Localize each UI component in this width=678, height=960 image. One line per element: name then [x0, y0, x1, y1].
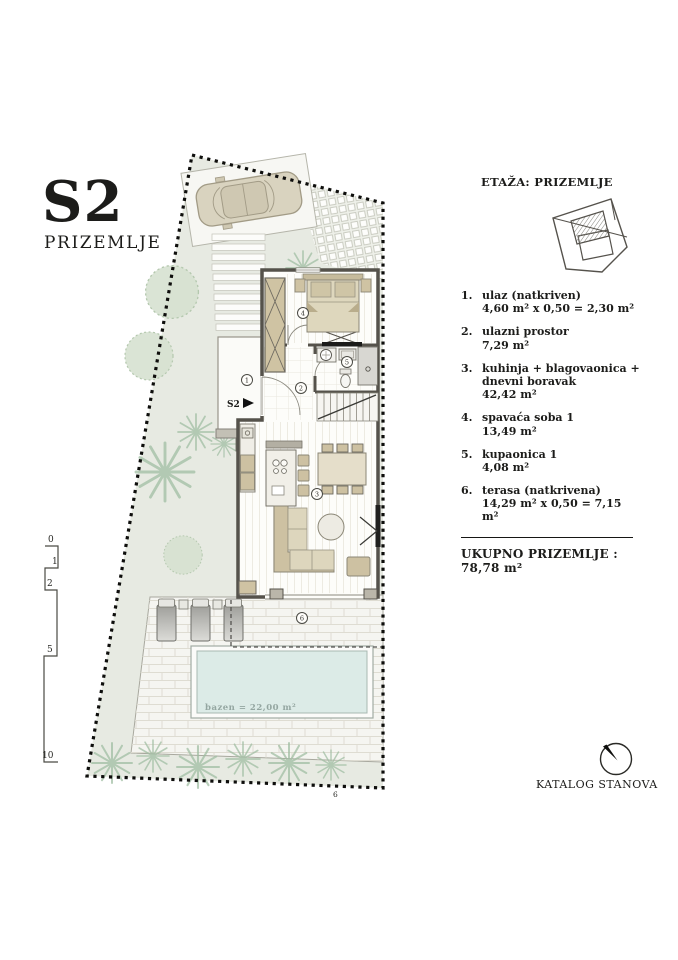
svg-text:4: 4 — [301, 309, 305, 317]
legend-room-area: 4,08 m² — [482, 461, 529, 474]
dining-set — [318, 444, 366, 494]
svg-text:10: 10 — [42, 751, 54, 761]
legend-number: 2. — [461, 325, 482, 351]
legend-item-3: 3. kuhinja + blagovaonica + dnevni borav… — [461, 362, 641, 402]
legend-room-area: 7,29 m² — [482, 339, 529, 352]
etaza-label: ETAŽA: PRIZEMLJE — [481, 175, 613, 189]
svg-text:0: 0 — [48, 535, 54, 545]
pool: bazen = 22,00 m² — [191, 646, 373, 718]
svg-text:6: 6 — [300, 614, 304, 622]
coffee-table — [318, 514, 344, 540]
legend-number: 3. — [461, 362, 482, 402]
ottoman — [347, 557, 370, 576]
room-legend: 1. ulaz (natkriven) 4,60 m² x 0,50 = 2,3… — [461, 289, 641, 575]
room-marker-5: 5 — [342, 357, 353, 368]
room-marker-6: 6 — [297, 613, 308, 624]
legend-item-1: 1. ulaz (natkriven) 4,60 m² x 0,50 = 2,3… — [461, 289, 641, 315]
toilet — [340, 369, 351, 388]
legend-number: 5. — [461, 448, 482, 474]
wardrobe — [265, 278, 285, 372]
stairs — [317, 393, 378, 421]
shower — [358, 347, 378, 385]
legend-room-name: ulazni prostor — [482, 325, 569, 338]
legend-room-area: 14,29 m² x 0,50 = 7,15 m² — [482, 497, 621, 523]
legend-item-6: 6. terasa (natkrivena) 14,29 m² x 0,50 =… — [461, 484, 641, 524]
room-marker-3: 3 — [312, 489, 323, 500]
floor-name: PRIZEMLJE — [44, 233, 162, 253]
room-marker-1: 1 — [242, 375, 253, 386]
svg-text:2: 2 — [47, 579, 53, 589]
legend-divider — [461, 537, 633, 538]
catalog-label: KATALOG STANOVA — [536, 778, 658, 791]
legend-room-name: terasa (natkrivena) — [482, 484, 601, 497]
legend-item-4: 4. spavaća soba 1 13,49 m² — [461, 411, 641, 437]
bed — [307, 280, 359, 332]
legend-number: 6. — [461, 484, 482, 524]
legend-room-name: spavaća soba 1 — [482, 411, 574, 424]
svg-text:2: 2 — [299, 384, 303, 392]
legend-room-name: kupaonica 1 — [482, 448, 557, 461]
legend-room-area: 42,42 m² — [482, 388, 537, 401]
svg-text:1: 1 — [245, 376, 249, 384]
total-area-label: UKUPNO PRIZEMLJE : 78,78 m² — [461, 547, 641, 576]
svg-text:5: 5 — [47, 645, 53, 655]
svg-text:5: 5 — [345, 358, 349, 366]
svg-text:1: 1 — [52, 557, 58, 567]
catalog-page: bazen = 22,00 m² — [0, 0, 678, 960]
room-marker-4: 4 — [298, 308, 309, 319]
key-plan — [540, 192, 640, 282]
unit-code: S2 — [42, 174, 123, 230]
svg-text:3: 3 — [315, 490, 319, 498]
legend-room-area: 4,60 m² x 0,50 = 2,30 m² — [482, 302, 634, 315]
sun-loungers — [157, 599, 243, 641]
legend-number: 4. — [461, 411, 482, 437]
svg-text:S2: S2 — [227, 400, 240, 410]
room-marker-2: 2 — [296, 383, 307, 394]
legend-room-name: kuhinja + blagovaonica + dnevni boravak — [482, 362, 640, 388]
boundary-mark: 6 — [333, 790, 338, 799]
compass-icon — [595, 737, 637, 779]
legend-number: 1. — [461, 289, 482, 315]
legend-room-name: ulaz (natkriven) — [482, 289, 581, 302]
legend-room-area: 13,49 m² — [482, 425, 537, 438]
scale-bar: 0 1 2 5 10 — [42, 535, 58, 762]
pool-area-label: bazen = 22,00 m² — [205, 703, 296, 713]
legend-item-2: 2. ulazni prostor 7,29 m² — [461, 325, 641, 351]
legend-item-5: 5. kupaonica 1 4,08 m² — [461, 448, 641, 474]
